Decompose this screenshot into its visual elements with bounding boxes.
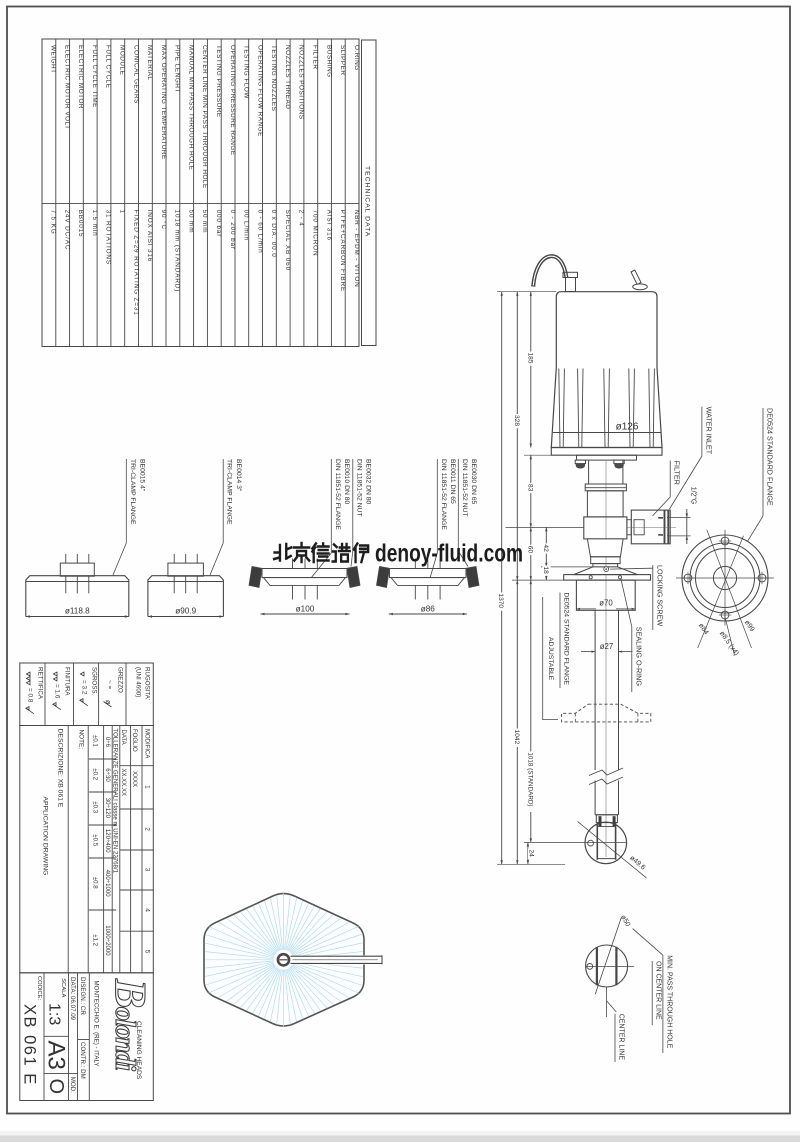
svg-text:APPLICATION DRAWING: APPLICATION DRAWING — [42, 797, 49, 876]
svg-text:PTFE+CARBON FIBRE: PTFE+CARBON FIBRE — [339, 210, 346, 292]
svg-text:CLEANING HEADS: CLEANING HEADS — [135, 1021, 142, 1080]
svg-text:BE0010 DN 80: BE0010 DN 80 — [343, 459, 350, 505]
svg-text:42: 42 — [542, 544, 549, 552]
svg-text:±1.2: ±1.2 — [92, 934, 99, 946]
svg-text:BB0015: BB0015 — [77, 210, 84, 238]
svg-text:ADJUSTABLE: ADJUSTABLE — [547, 637, 554, 681]
svg-text:(UNI 4600): (UNI 4600) — [135, 667, 142, 697]
svg-text:NBR - EPDM - VITON: NBR - EPDM - VITON — [353, 210, 360, 288]
svg-text:ø27: ø27 — [600, 642, 613, 651]
svg-text:= 3.2: = 3.2 — [81, 680, 88, 695]
svg-text:1: 1 — [119, 210, 126, 214]
svg-text:FIXED Z=29 ROTATING Z=31: FIXED Z=29 ROTATING Z=31 — [132, 210, 139, 316]
svg-text:ELECTRIC MOTOR: ELECTRIC MOTOR — [77, 45, 84, 109]
svg-text:O: O — [45, 1079, 67, 1095]
svg-text:000 bar: 000 bar — [215, 210, 222, 238]
svg-text:FOGLIO: FOGLIO — [131, 729, 137, 752]
svg-text:1.5 min: 1.5 min — [91, 210, 98, 237]
svg-text:SGROSS.: SGROSS. — [91, 667, 98, 695]
svg-text:FILTER: FILTER — [312, 45, 319, 70]
svg-text:DATA: 06.07.09: DATA: 06.07.09 — [69, 977, 76, 1021]
svg-text:328: 328 — [513, 415, 520, 426]
svg-text:FINITURA: FINITURA — [64, 667, 71, 696]
svg-text:ø86: ø86 — [421, 605, 436, 614]
svg-text:±0.3: ±0.3 — [92, 801, 99, 813]
svg-text:MODIFICA: MODIFICA — [143, 729, 149, 758]
svg-text:AISI 316: AISI 316 — [325, 210, 332, 241]
svg-text:LOCKING SCREW: LOCKING SCREW — [655, 565, 664, 626]
svg-text:0 - 60 L/min: 0 - 60 L/min — [256, 210, 263, 254]
svg-text:ø100: ø100 — [296, 605, 315, 614]
svg-text:OPERATING FLOW RANGE: OPERATING FLOW RANGE — [256, 45, 263, 137]
svg-text:MONTECCHIO E. (RE) - ITALY: MONTECCHIO E. (RE) - ITALY — [93, 981, 100, 1067]
svg-text:MANUAL MIN PASS THROUGH HOLE: MANUAL MIN PASS THROUGH HOLE — [187, 45, 194, 170]
svg-text:DIN 11851-52 NUT: DIN 11851-52 NUT — [461, 459, 468, 517]
svg-text:±0.5: ±0.5 — [92, 834, 99, 846]
svg-text:BE0032 DN 80: BE0032 DN 80 — [364, 459, 371, 505]
svg-text:1370: 1370 — [497, 593, 504, 608]
svg-text:NOZZLES POSITIONS: NOZZLES POSITIONS — [298, 45, 305, 120]
svg-text:1000÷2000: 1000÷2000 — [104, 925, 111, 956]
svg-text:WATER INLET: WATER INLET — [705, 407, 714, 455]
svg-text:BUSHING: BUSHING — [325, 45, 332, 78]
svg-text:24V DC/AC: 24V DC/AC — [63, 210, 70, 251]
svg-text:RUGOSITA': RUGOSITA' — [144, 667, 151, 700]
svg-text:ELECTRIC MOTOR VOLT: ELECTRIC MOTOR VOLT — [63, 45, 70, 130]
svg-text:~ =: ~ = — [106, 680, 113, 690]
svg-text:WEIGHT: WEIGHT — [50, 45, 57, 74]
svg-text:3: 3 — [144, 868, 151, 872]
svg-text:DIN 11851-52 FLANGE: DIN 11851-52 FLANGE — [334, 459, 341, 530]
svg-text:0 x DIA. 00.0: 0 x DIA. 00.0 — [270, 210, 277, 258]
svg-text:TESTING PRESSURE: TESTING PRESSURE — [215, 45, 222, 118]
svg-text:90 °C: 90 °C — [160, 210, 168, 230]
svg-text:XB 061 E: XB 061 E — [21, 1004, 39, 1086]
svg-text:±0.2: ±0.2 — [92, 768, 99, 780]
svg-text:TESTING NOZZLES: TESTING NOZZLES — [270, 45, 277, 111]
svg-text:A3: A3 — [43, 1041, 70, 1070]
svg-text:XX.XX.XX: XX.XX.XX — [120, 769, 126, 796]
svg-text:BE0014 3": BE0014 3" — [235, 459, 242, 492]
svg-text:CENTER LINE: CENTER LINE — [618, 1014, 625, 1061]
svg-text:MIN. PASS THROUGH HOLE: MIN. PASS THROUGH HOLE — [666, 955, 673, 1048]
svg-text:BE0030 DN 65: BE0030 DN 65 — [470, 459, 477, 505]
svg-text:185: 185 — [527, 353, 534, 364]
svg-text:FULL CYCLE: FULL CYCLE — [105, 45, 112, 88]
svg-text:OPERATING PRESSURE RANGE: OPERATING PRESSURE RANGE — [229, 45, 236, 156]
svg-text:ON CENTER LINE: ON CENTER LINE — [655, 961, 662, 1020]
svg-text:DIN 11851-52 NUT: DIN 11851-52 NUT — [355, 459, 362, 517]
svg-text:ø90.9: ø90.9 — [175, 607, 196, 616]
svg-text:NOZZLES THREAD: NOZZLES THREAD — [284, 45, 291, 109]
svg-text:BE0015 4": BE0015 4" — [138, 459, 145, 492]
svg-text:MATERIAL: MATERIAL — [146, 45, 153, 81]
svg-text:DE0524 STANDARD FLANGE: DE0524 STANDARD FLANGE — [766, 408, 775, 506]
svg-text:50 mm: 50 mm — [201, 210, 208, 234]
svg-text:RETTIFICA: RETTIFICA — [37, 667, 44, 700]
svg-text:CONICAL GEARS: CONICAL GEARS — [132, 45, 139, 104]
svg-text:INOX AISI 316: INOX AISI 316 — [146, 210, 153, 263]
svg-text:30÷120: 30÷120 — [104, 798, 111, 819]
svg-text:ø118.8: ø118.8 — [65, 607, 90, 616]
svg-text:O.RING: O.RING — [353, 45, 360, 71]
svg-text:120÷400: 120÷400 — [104, 829, 111, 853]
svg-text:±0.8: ±0.8 — [92, 877, 99, 889]
svg-text:SEALING O-RING: SEALING O-RING — [634, 627, 643, 687]
svg-text:31 ROTATIONS: 31 ROTATIONS — [105, 210, 112, 265]
svg-text:4: 4 — [144, 908, 151, 912]
svg-text:TRI-CLAMP FLANGE: TRI-CLAMP FLANGE — [129, 459, 136, 525]
svg-text:DESCRIZIONE: XB 061 E: DESCRIZIONE: XB 061 E — [57, 729, 64, 808]
svg-text:ø126: ø126 — [616, 422, 639, 433]
svg-text:DISEGN.: CR: DISEGN.: CR — [79, 977, 86, 1015]
svg-text:1: 1 — [144, 785, 151, 789]
svg-text:5: 5 — [144, 950, 151, 954]
svg-text:SCALA: SCALA — [60, 978, 66, 997]
svg-text:GREZZO: GREZZO — [117, 667, 124, 693]
svg-text:83: 83 — [527, 484, 534, 492]
svg-text:7.5 KG: 7.5 KG — [50, 210, 57, 235]
svg-text:CENTER LINE MIN PASS THROUGH H: CENTER LINE MIN PASS THROUGH HOLE — [201, 45, 208, 189]
svg-text:denoy-fluid.com: denoy-fluid.com — [375, 540, 523, 568]
svg-text:NOTE:: NOTE: — [78, 730, 85, 750]
svg-text:TOLLERANZE GENERALI classe m U: TOLLERANZE GENERALI classe m UNI-EN 2276… — [112, 729, 119, 874]
svg-text:TESTING FLOW: TESTING FLOW — [243, 45, 250, 99]
svg-text:FULL CYCLE TIME: FULL CYCLE TIME — [91, 45, 98, 108]
svg-text:SPECIAL XB 060: SPECIAL XB 060 — [284, 210, 291, 271]
svg-text:50 mm: 50 mm — [187, 210, 194, 234]
svg-text:400÷1000: 400÷1000 — [104, 870, 111, 898]
svg-text:DATA: DATA — [120, 730, 126, 745]
svg-text:1/2"G: 1/2"G — [690, 487, 697, 505]
svg-text:60: 60 — [527, 546, 534, 554]
svg-text:XXXX: XXXX — [131, 771, 137, 787]
svg-text:= 1.6: = 1.6 — [54, 684, 61, 699]
svg-text:1:3: 1:3 — [46, 1003, 63, 1025]
svg-text:CODICE:: CODICE: — [36, 976, 42, 1001]
svg-text:SLIPPER: SLIPPER — [339, 45, 346, 76]
svg-text:0 - 200 bar: 0 - 200 bar — [229, 210, 236, 250]
svg-text:2 - 4: 2 - 4 — [298, 210, 305, 227]
svg-text:MAX OPERATING TEMPERATURE: MAX OPERATING TEMPERATURE — [160, 45, 167, 160]
svg-text:FILTER: FILTER — [673, 461, 682, 485]
svg-text:2: 2 — [144, 827, 151, 831]
svg-text:CONTR.: DM: CONTR.: DM — [79, 1042, 86, 1079]
svg-text:0÷6: 0÷6 — [104, 737, 111, 748]
svg-text:ø70: ø70 — [599, 599, 613, 608]
svg-text:MODULE: MODULE — [119, 45, 126, 75]
svg-text:24: 24 — [528, 850, 535, 858]
svg-text:700 MICRON: 700 MICRON — [312, 210, 319, 257]
svg-text:DIN 11851-52 FLANGE: DIN 11851-52 FLANGE — [440, 459, 447, 530]
svg-text:= 0.8: = 0.8 — [27, 688, 34, 703]
svg-text:DE0524 STANDARD FLANGE: DE0524 STANDARD FLANGE — [563, 593, 570, 686]
svg-text:TRI-CLAMP FLANGE: TRI-CLAMP FLANGE — [226, 459, 233, 525]
svg-text:00 L/min: 00 L/min — [243, 210, 250, 241]
svg-text:±0.1: ±0.1 — [92, 735, 99, 747]
svg-text:6÷30: 6÷30 — [104, 768, 111, 782]
svg-text:TECHNICAL DATA: TECHNICAL DATA — [364, 166, 371, 237]
svg-text:BE0011 DN 65: BE0011 DN 65 — [449, 459, 456, 504]
svg-text:1018 mm (STANDARD): 1018 mm (STANDARD) — [174, 210, 181, 293]
svg-text:18: 18 — [542, 567, 549, 575]
svg-text:1042: 1042 — [513, 730, 520, 745]
svg-text:MOD.: MOD. — [69, 1077, 76, 1093]
svg-text:1018 (STANDARD): 1018 (STANDARD) — [527, 752, 534, 806]
svg-text:PIPE LENGHT: PIPE LENGHT — [174, 45, 181, 93]
